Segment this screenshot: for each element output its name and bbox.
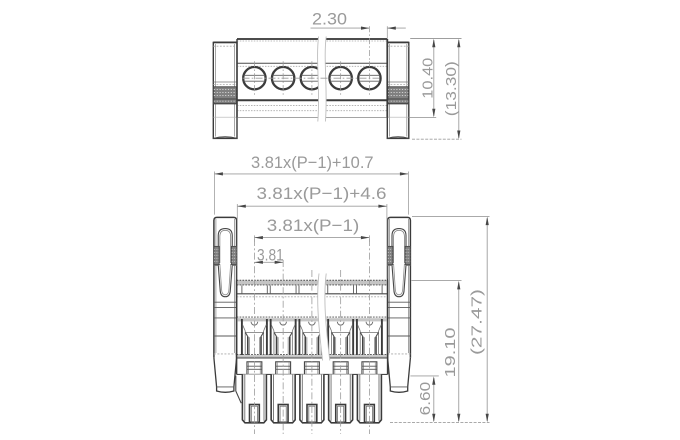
svg-text:19.10: 19.10	[442, 328, 459, 378]
svg-text:3.81x(P−1)+4.6: 3.81x(P−1)+4.6	[257, 184, 387, 203]
svg-text:3.81x(P−1)+10.7: 3.81x(P−1)+10.7	[251, 153, 374, 172]
svg-text:6.60: 6.60	[417, 382, 434, 416]
svg-text:(13.30): (13.30)	[443, 61, 460, 116]
svg-text:3.81x(P−1): 3.81x(P−1)	[267, 216, 360, 235]
svg-text:10.40: 10.40	[419, 58, 436, 99]
svg-text:(27.47): (27.47)	[469, 289, 486, 355]
svg-text:2.30: 2.30	[312, 10, 347, 29]
